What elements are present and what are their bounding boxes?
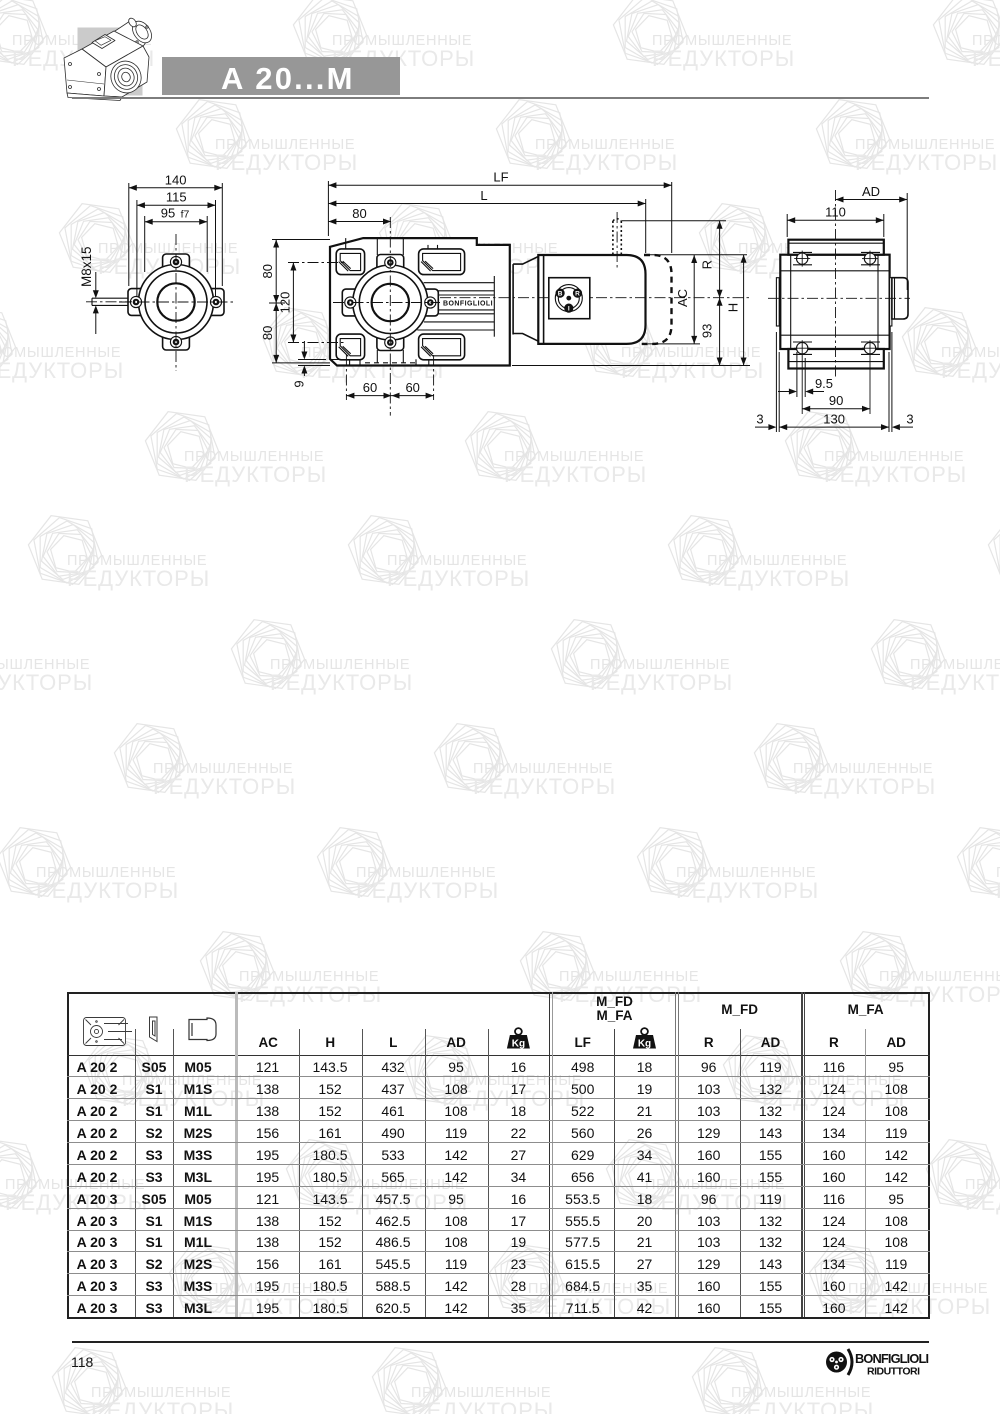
svg-text:РЕДУКТОРЫ: РЕДУКТОРЫ: [36, 878, 179, 903]
svg-text:РЕДУКТОРЫ: РЕДУКТОРЫ: [356, 878, 499, 903]
svg-text:f7: f7: [181, 209, 190, 221]
svg-text:РЕДУКТОРЫ: РЕДУКТОРЫ: [676, 878, 819, 903]
svg-text:120: 120: [277, 292, 292, 314]
svg-text:I: I: [568, 305, 570, 312]
svg-text:BONFIGLIOLI: BONFIGLIOLI: [855, 1351, 929, 1366]
svg-text:LF: LF: [493, 170, 508, 185]
svg-text:РЕДУКТОРЫ: РЕДУКТОРЫ: [910, 670, 1000, 695]
svg-text:60: 60: [363, 380, 377, 395]
svg-text:R: R: [700, 260, 715, 269]
svg-text:РЕДУКТОРЫ: РЕДУКТОРЫ: [270, 670, 413, 695]
svg-text:AD: AD: [862, 184, 880, 199]
svg-text:BONFIGLIOLI: BONFIGLIOLI: [443, 301, 493, 308]
svg-text:140: 140: [165, 172, 187, 187]
svg-text:L: L: [480, 188, 487, 203]
svg-text:3: 3: [756, 412, 763, 427]
svg-text:R: R: [575, 290, 580, 297]
svg-text:115: 115: [166, 190, 187, 205]
svg-text:РЕДУКТОРЫ: РЕДУКТОРЫ: [67, 566, 210, 591]
svg-text:РЕДУКТОРЫ: РЕДУКТОРЫ: [473, 774, 616, 799]
svg-text:H: H: [726, 303, 741, 312]
svg-text:РЕДУКТОРЫ: РЕДУКТОРЫ: [0, 670, 93, 695]
svg-text:РЕДУКТОРЫ: РЕДУКТОРЫ: [590, 670, 733, 695]
svg-text:80: 80: [260, 326, 275, 340]
svg-text:95: 95: [161, 206, 175, 221]
svg-text:РЕДУКТОРЫ: РЕДУКТОРЫ: [153, 774, 296, 799]
svg-text:9.5: 9.5: [815, 376, 833, 391]
svg-text:93: 93: [699, 324, 714, 338]
svg-text:9: 9: [292, 380, 307, 387]
svg-text:РЕДУКТОРЫ: РЕДУКТОРЫ: [707, 566, 850, 591]
svg-text:AC: AC: [675, 289, 690, 307]
svg-text:80: 80: [260, 264, 275, 278]
svg-text:RIDUTTORI: RIDUTTORI: [867, 1366, 920, 1378]
svg-text:РЕДУКТОРЫ: РЕДУКТОРЫ: [239, 982, 382, 1007]
svg-text:РЕДУКТОРЫ: РЕДУКТОРЫ: [731, 1398, 874, 1414]
svg-text:3: 3: [906, 412, 913, 427]
svg-text:РЕДУКТОРЫ: РЕДУКТОРЫ: [411, 1398, 554, 1414]
svg-text:110: 110: [825, 205, 846, 220]
svg-text:80: 80: [352, 206, 366, 221]
svg-text:РЕДУКТОРЫ: РЕДУКТОРЫ: [996, 878, 1000, 903]
svg-text:90: 90: [829, 393, 843, 408]
svg-text:B: B: [558, 290, 563, 297]
svg-text:РЕДУКТОРЫ: РЕДУКТОРЫ: [965, 1190, 1000, 1215]
svg-text:130: 130: [823, 412, 845, 427]
svg-text:M8x15: M8x15: [79, 246, 94, 287]
svg-text:РЕДУКТОРЫ: РЕДУКТОРЫ: [91, 1398, 234, 1414]
svg-text:РЕДУКТОРЫ: РЕДУКТОРЫ: [387, 566, 530, 591]
svg-text:РЕДУКТОРЫ: РЕДУКТОРЫ: [793, 774, 936, 799]
svg-text:60: 60: [405, 380, 419, 395]
